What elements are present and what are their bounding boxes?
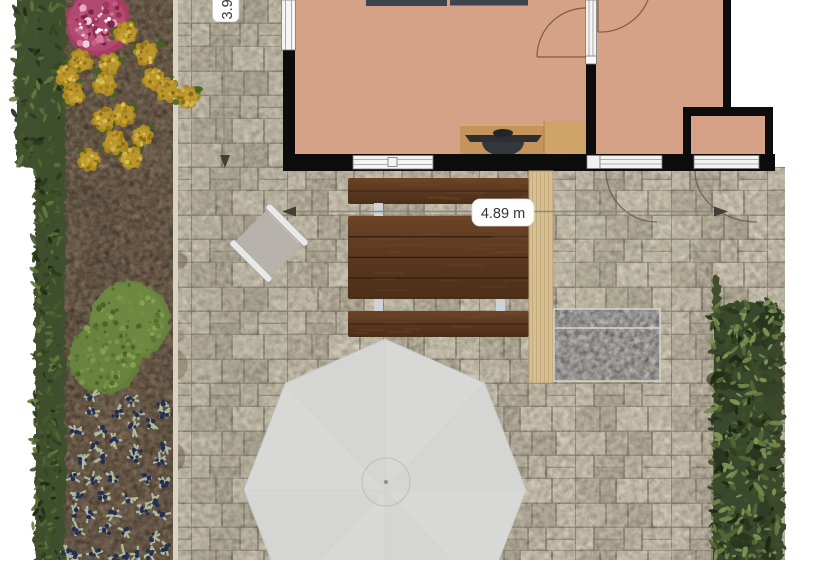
svg-text:3.95 m: 3.95 m bbox=[220, 0, 236, 20]
svg-text:4.89 m: 4.89 m bbox=[481, 206, 525, 222]
